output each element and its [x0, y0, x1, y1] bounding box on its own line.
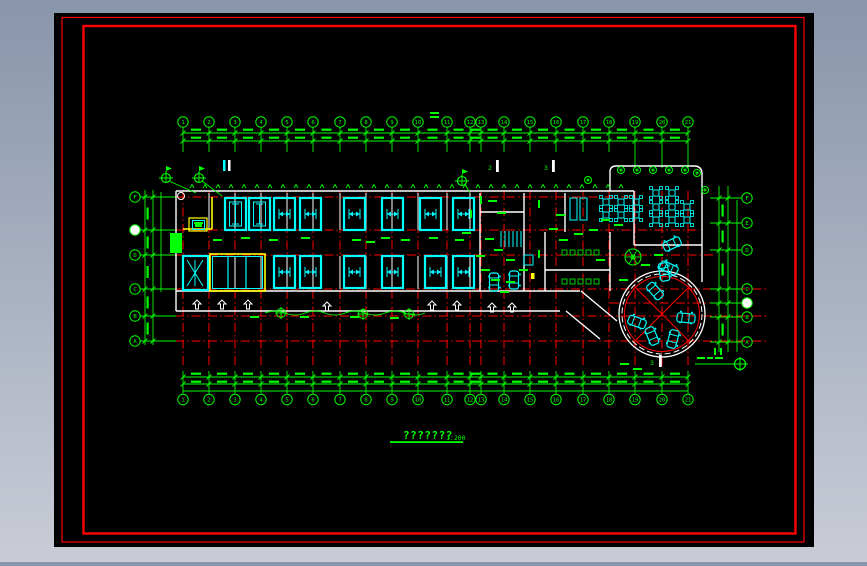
grid-bubble-label: 17 [580, 120, 587, 126]
annotation-marks [565, 137, 575, 139]
grid-bubble-label: 8 [364, 398, 367, 404]
car-symbol-part [643, 318, 645, 319]
annotation-marks [538, 129, 548, 131]
section-marker-bar [552, 160, 555, 172]
grid-bubble-label: 13 [478, 120, 485, 126]
annotation-marks [476, 255, 485, 257]
annotation-marks [217, 129, 227, 131]
annotation-marks [670, 373, 680, 375]
annotation-marks [243, 381, 253, 383]
grid-bubble-label: 15 [527, 120, 534, 126]
annotation-marks [348, 137, 358, 139]
grid-bubble-label: 11 [444, 120, 451, 126]
car-symbol-part [662, 290, 663, 291]
annotation-marks [430, 116, 439, 118]
grid-bubble-label: 11 [444, 398, 451, 404]
annotation-marks [213, 239, 222, 241]
grid-bubble-label: 20 [659, 120, 666, 126]
grid-bubble-label: 21 [685, 398, 692, 404]
annotation-marks [429, 237, 438, 239]
annotation-marks [241, 237, 250, 239]
grid-bubble-label: 2 [207, 120, 210, 126]
cad-viewport[interactable]: 1234567891011121314151617181920211234567… [0, 0, 867, 562]
grid-bubble-label: 2 [207, 398, 210, 404]
annotation-marks [644, 137, 654, 139]
grid-bubble-label: F [133, 195, 136, 201]
annotation-marks [454, 373, 464, 375]
car-symbol-part [680, 334, 681, 336]
annotation-marks [454, 137, 464, 139]
annotation-marks [191, 373, 201, 375]
annotation-marks [400, 373, 410, 375]
annotation-marks [243, 129, 253, 131]
annotation-marks [720, 348, 722, 355]
car-symbol-part [654, 298, 655, 299]
grid-bubble-label: 9 [390, 398, 393, 404]
grid-bubble-label: 1 [181, 398, 184, 404]
car-symbol-part [645, 332, 646, 334]
grid-bubble [130, 225, 140, 235]
annotation-marks [574, 233, 583, 235]
grid-bubble-label: D [745, 248, 748, 254]
annotation-marks [428, 129, 438, 131]
annotation-marks [381, 237, 390, 239]
annotation-marks [591, 137, 601, 139]
annotation-marks [471, 373, 481, 375]
car-symbol-part [647, 290, 648, 291]
annotation-marks [494, 249, 503, 251]
car-symbol-part [671, 274, 673, 275]
car-symbol-part [649, 342, 650, 344]
car-symbol-part [668, 250, 670, 251]
annotation-marks [559, 239, 568, 241]
section-marker-label: 3 [650, 359, 654, 367]
annotation-marks [670, 137, 680, 139]
annotation-marks [430, 112, 439, 114]
annotation-marks [591, 381, 601, 383]
annotation-marks [352, 239, 361, 241]
annotation-marks [401, 239, 410, 241]
annotation-marks [707, 357, 713, 359]
annotation-marks [549, 228, 558, 230]
annotation-marks [428, 137, 438, 139]
annotation-marks [400, 137, 410, 139]
annotation-marks [633, 368, 642, 370]
grid-bubble-label: 13 [478, 398, 485, 404]
annotation-marks [506, 259, 515, 261]
grid-bubble-label: 10 [415, 398, 422, 404]
annotation-marks [714, 348, 716, 355]
drawing-sheet [54, 13, 814, 547]
grid-bubble-label: 1 [181, 120, 184, 126]
annotation-marks [614, 224, 623, 226]
annotation-marks [269, 239, 278, 241]
annotation-marks [147, 297, 149, 309]
annotation-marks [322, 129, 332, 131]
grid-bubble-label: C [745, 287, 748, 293]
selected-mark [531, 273, 535, 279]
grid-bubble [742, 298, 752, 308]
annotation-marks [488, 200, 497, 202]
annotation-marks [488, 129, 498, 131]
annotation-marks [191, 129, 201, 131]
grid-bubble-label: 7 [338, 120, 341, 126]
annotation-marks [715, 357, 723, 359]
car-symbol-part [678, 246, 680, 247]
annotation-marks [269, 129, 279, 131]
annotation-marks [348, 381, 358, 383]
grid-bubble-label: F [745, 196, 748, 202]
annotation-marks [217, 381, 227, 383]
grid-bubble-label: 6 [311, 398, 314, 404]
annotation-marks [641, 264, 650, 266]
annotation-marks [512, 129, 522, 131]
section-marker-label: 3 [544, 164, 548, 172]
annotation-marks [147, 323, 149, 335]
annotation-marks [617, 381, 627, 383]
section-marker-bar [496, 160, 499, 172]
grid-bubble-label: 18 [606, 120, 613, 126]
annotation-marks [471, 137, 481, 139]
annotation-marks [617, 137, 627, 139]
grid-bubble-label: E [745, 221, 748, 227]
grid-bubble-label: 18 [606, 398, 613, 404]
grid-bubble-label: 12 [467, 398, 474, 404]
annotation-marks [191, 381, 201, 383]
car-symbol-part [664, 240, 666, 241]
grid-bubble-label: 5 [285, 398, 288, 404]
annotation-marks [374, 373, 384, 375]
annotation-marks [322, 381, 332, 383]
annotation-marks [697, 357, 705, 359]
section-marker-bar [659, 355, 662, 367]
annotation-marks [591, 129, 601, 131]
car-symbol-part [655, 282, 656, 283]
grid-bubble-label: C [133, 287, 136, 293]
annotation-marks [488, 373, 498, 375]
annotation-marks [722, 205, 724, 217]
desktop-background: 1234567891011121314151617181920211234567… [0, 0, 867, 562]
grid-bubble-label: D [133, 253, 136, 259]
annotation-marks [644, 373, 654, 375]
grid-bubble-label: 21 [685, 120, 692, 126]
annotation-marks [538, 373, 548, 375]
annotation-marks [322, 373, 332, 375]
car-symbol-part [676, 264, 678, 265]
grid-bubble-label: 3 [233, 120, 236, 126]
section-marker-bar [223, 160, 226, 171]
annotation-marks [374, 137, 384, 139]
annotation-marks [538, 381, 548, 383]
annotation-marks [454, 129, 464, 131]
car-symbol-part [661, 270, 663, 271]
car-symbol-part [640, 328, 642, 329]
annotation-marks [481, 269, 490, 271]
annotation-marks [512, 373, 522, 375]
annotation-marks [591, 373, 601, 375]
annotation-marks [243, 137, 253, 139]
annotation-marks [497, 212, 506, 214]
annotation-marks [644, 381, 654, 383]
grid-bubble-label: 16 [553, 120, 560, 126]
annotation-marks [350, 316, 359, 318]
annotation-marks [348, 129, 358, 131]
annotation-marks [217, 137, 227, 139]
annotation-marks [722, 231, 724, 243]
annotation-marks [617, 373, 627, 375]
annotation-marks [500, 291, 509, 293]
annotation-marks [488, 137, 498, 139]
grid-bubble-label: 6 [311, 120, 314, 126]
car-symbol-part [677, 345, 678, 347]
car-symbol-part [666, 342, 667, 344]
annotation-marks [301, 237, 310, 239]
grid-bubble-label: 19 [632, 120, 639, 126]
annotation-marks [556, 214, 565, 216]
car-symbol-part [669, 331, 670, 333]
annotation-marks [619, 279, 628, 281]
car-symbol-part [629, 324, 631, 325]
annotation-marks [654, 254, 663, 256]
annotation-marks [428, 373, 438, 375]
annotation-marks [374, 381, 384, 383]
annotation-marks [722, 264, 724, 276]
annotation-marks [348, 373, 358, 375]
annotation-marks [470, 210, 472, 218]
annotation-marks [722, 324, 724, 336]
grid-bubble-label: 10 [415, 120, 422, 126]
section-marker-label: 2 [488, 164, 492, 172]
annotation-marks [191, 137, 201, 139]
annotation-marks [512, 381, 522, 383]
car-symbol-part [659, 338, 660, 340]
grid-bubble-label: 15 [527, 398, 534, 404]
drawing-scale-label: 1:200 [446, 434, 466, 442]
annotation-marks [243, 373, 253, 375]
grid-bubble-label: 3 [233, 398, 236, 404]
annotation-marks [471, 129, 481, 131]
section-marker-bar [228, 160, 231, 171]
grid-bubble-label: 7 [338, 398, 341, 404]
car-symbol-part [655, 328, 656, 330]
title-underline [390, 441, 463, 443]
annotation-marks [462, 232, 471, 234]
grid-bubble-label: 14 [501, 398, 508, 404]
annotation-marks [322, 137, 332, 139]
annotation-marks [300, 316, 309, 318]
annotation-marks [428, 381, 438, 383]
annotation-marks [295, 381, 305, 383]
annotation-marks [506, 281, 515, 283]
grid-bubble-label: 16 [553, 398, 560, 404]
annotation-marks [455, 239, 464, 241]
annotation-marks [519, 269, 528, 271]
grid-bubble-label: 9 [390, 120, 393, 126]
annotation-marks [147, 266, 149, 278]
annotation-marks [269, 137, 279, 139]
annotation-marks [670, 129, 680, 131]
grid-bubble-label: 12 [467, 120, 474, 126]
annotation-marks [485, 238, 494, 240]
annotation-marks [512, 137, 522, 139]
annotation-marks [589, 229, 598, 231]
annotation-marks [620, 363, 629, 365]
annotation-marks [596, 259, 605, 261]
annotation-marks [366, 241, 375, 243]
annotation-marks [269, 373, 279, 375]
annotation-marks [565, 373, 575, 375]
annotation-marks [538, 137, 548, 139]
grid-bubble-label: 8 [364, 120, 367, 126]
annotation-marks [488, 381, 498, 383]
annotation-marks [601, 219, 610, 221]
grid-bubble-label: 14 [501, 120, 508, 126]
annotation-marks [617, 129, 627, 131]
annotation-marks [295, 373, 305, 375]
annotation-marks [670, 381, 680, 383]
annotation-marks [644, 129, 654, 131]
annotation-marks [565, 129, 575, 131]
grid-bubble-label: 17 [580, 398, 587, 404]
annotation-marks [471, 381, 481, 383]
annotation-marks [400, 129, 410, 131]
door-highlight [170, 233, 182, 253]
annotation-marks [454, 381, 464, 383]
annotation-marks [217, 373, 227, 375]
annotation-marks [491, 279, 500, 281]
annotation-marks [538, 250, 540, 258]
grid-bubble-label: 5 [285, 120, 288, 126]
grid-bubble-label: 19 [632, 398, 639, 404]
grid-bubble-label: 20 [659, 398, 666, 404]
car-symbol-part [674, 236, 676, 237]
annotation-marks [390, 317, 399, 319]
annotation-marks [538, 200, 540, 208]
annotation-marks [565, 381, 575, 383]
annotation-marks [480, 196, 482, 204]
annotation-marks [295, 129, 305, 131]
annotation-marks [250, 316, 259, 318]
car-symbol-part [633, 314, 635, 315]
annotation-marks [374, 129, 384, 131]
annotation-marks [269, 381, 279, 383]
annotation-marks [147, 208, 149, 220]
annotation-marks [147, 237, 149, 249]
annotation-marks [400, 381, 410, 383]
annotation-marks [194, 222, 203, 224]
annotation-marks [295, 137, 305, 139]
car-symbol-part [666, 260, 668, 261]
